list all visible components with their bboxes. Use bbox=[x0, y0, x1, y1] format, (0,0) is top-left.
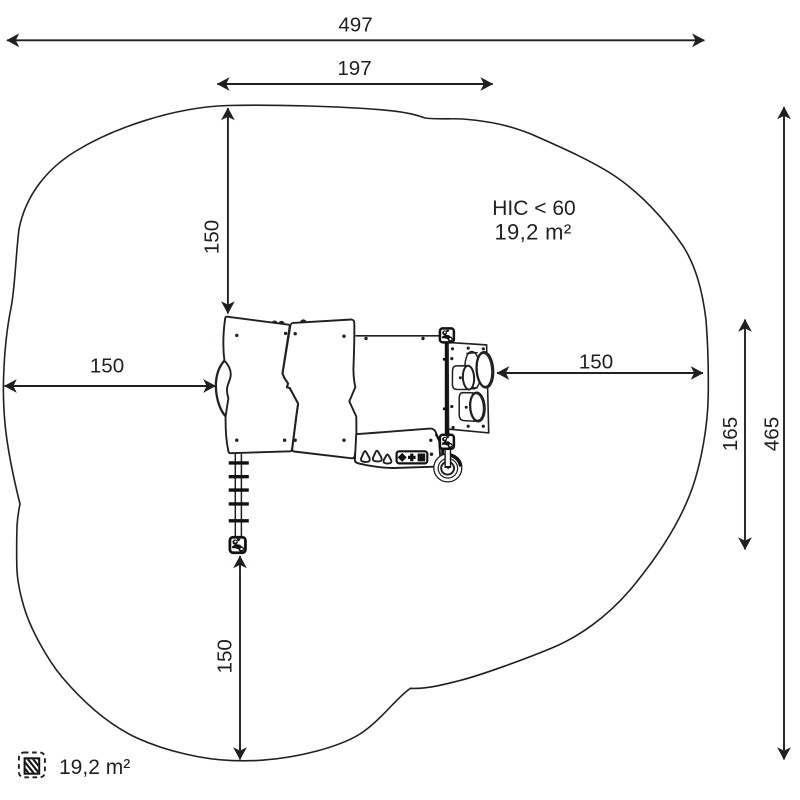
svg-text:19,2 m²: 19,2 m² bbox=[59, 756, 130, 779]
svg-text:150: 150 bbox=[579, 351, 613, 374]
svg-text:197: 197 bbox=[337, 57, 371, 80]
svg-text:497: 497 bbox=[338, 14, 372, 37]
svg-text:150: 150 bbox=[214, 639, 237, 673]
svg-text:165: 165 bbox=[719, 417, 742, 451]
svg-text:150: 150 bbox=[90, 355, 124, 378]
svg-text:HIC < 60: HIC < 60 bbox=[492, 197, 575, 220]
svg-text:465: 465 bbox=[761, 417, 784, 451]
svg-text:19,2 m²: 19,2 m² bbox=[494, 219, 571, 244]
svg-text:150: 150 bbox=[201, 220, 224, 254]
